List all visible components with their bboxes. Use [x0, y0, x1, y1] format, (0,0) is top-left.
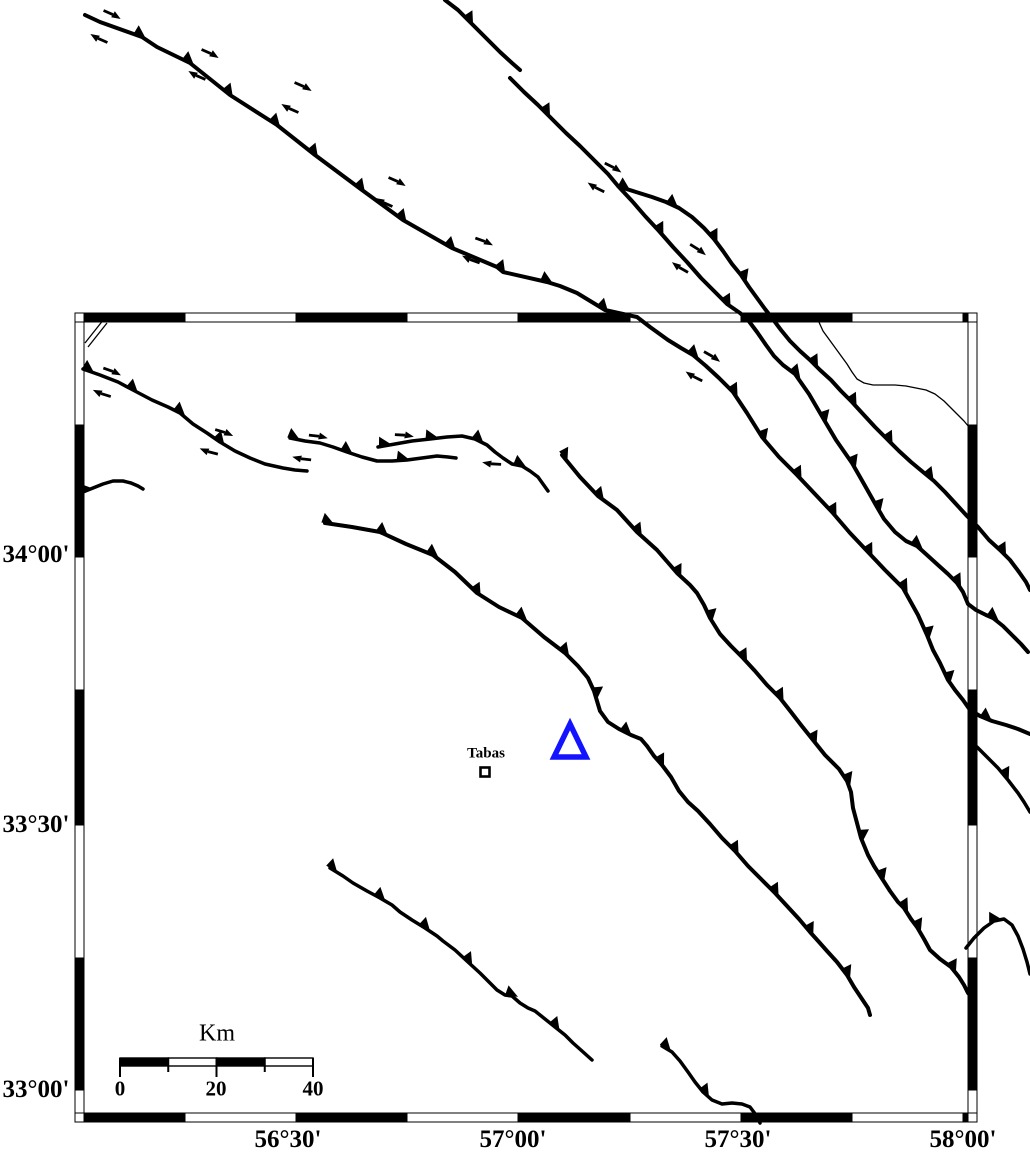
scalebar-segment — [168, 1058, 216, 1066]
fault-ne-thrust-upper-segment — [445, 0, 520, 70]
slip-arrow-icon — [91, 387, 111, 402]
slip-arrow-layer — [89, 6, 723, 470]
slip-arrow-icon — [703, 347, 722, 364]
frame-bottom-segment — [518, 1113, 630, 1122]
frame-left-segment — [75, 322, 84, 425]
fault-sw-thrust — [326, 858, 592, 1060]
frame-bottom-segment — [84, 1113, 185, 1122]
scalebar-label-40: 40 — [303, 1077, 324, 1102]
frame-top-segment — [407, 313, 518, 322]
lon-label-58-00: 58°00' — [930, 1126, 997, 1154]
scalebar-segment — [217, 1058, 265, 1066]
frame-left-segment — [75, 557, 84, 690]
frame-bottom-segment — [630, 1113, 741, 1122]
frame-corner — [968, 1113, 977, 1122]
slip-arrow-icon — [395, 429, 415, 440]
slip-arrow-icon — [280, 101, 300, 117]
frame-right-segment — [968, 1090, 977, 1113]
fault-trace — [325, 523, 870, 1015]
lon-label-57-30: 57°30' — [705, 1126, 772, 1154]
fault-south-small-fault — [660, 1037, 760, 1123]
map-canvas — [0, 0, 1030, 1154]
frame-top-segment — [630, 313, 741, 322]
frame-right-segment — [968, 958, 977, 1090]
frame-bottom-segment — [296, 1113, 407, 1122]
slip-arrow-icon — [294, 78, 314, 94]
fault-trace — [290, 438, 456, 461]
frame-top-segment — [296, 313, 407, 322]
fault-trace — [83, 481, 143, 492]
frame-top-segment — [741, 313, 852, 322]
fault-central-thrust — [321, 513, 870, 1015]
thrust-tooth — [321, 513, 334, 525]
slip-arrow-icon — [308, 430, 328, 442]
scalebar-label-20: 20 — [206, 1077, 227, 1102]
frame-bottom-segment — [852, 1113, 963, 1122]
fault-east-central-thrust — [559, 447, 974, 1000]
thrust-tooth — [505, 985, 518, 996]
frame-corner — [968, 313, 977, 322]
slip-arrow-icon — [89, 31, 109, 47]
frame-corner — [75, 1113, 84, 1122]
scalebar — [120, 1058, 313, 1077]
slip-arrow-icon — [475, 233, 495, 248]
slip-arrow-icon — [201, 45, 221, 61]
frame-right-segment — [968, 557, 977, 690]
fault-trace — [662, 1046, 760, 1123]
frame-left-segment — [75, 1090, 84, 1113]
scalebar-label-0: 0 — [115, 1077, 126, 1102]
fault-ew-fault-1 — [82, 360, 307, 471]
fault-west-short-fault — [78, 481, 143, 493]
frame-top-segment — [852, 313, 963, 322]
lat-label-33-00: 33°00' — [3, 1076, 70, 1104]
station-triangle-marker — [554, 724, 586, 757]
slip-arrow-icon — [291, 453, 311, 465]
fault-trace — [330, 868, 592, 1060]
frame-corner — [75, 313, 84, 322]
scalebar-title: Km — [199, 1021, 235, 1048]
thrust-tooth — [397, 451, 410, 461]
slip-arrow-icon — [198, 445, 218, 459]
frame-bottom-segment — [407, 1113, 518, 1122]
frame-left-segment — [75, 825, 84, 958]
river — [818, 320, 969, 427]
fault-layer — [78, 0, 1030, 1123]
fault-trace — [977, 747, 1030, 812]
thrust-tooth — [426, 429, 439, 439]
frame-right-segment — [968, 322, 977, 425]
frame-top-segment — [518, 313, 630, 322]
lon-label-56-30: 56°30' — [255, 1126, 322, 1154]
slip-arrow-icon — [103, 6, 123, 22]
frame-left-segment — [75, 958, 84, 1090]
fault-ne-thrust-main — [510, 78, 1028, 652]
lon-label-57-00: 57°00' — [480, 1126, 547, 1154]
frame-right-segment — [968, 425, 977, 557]
slip-arrow-icon — [586, 180, 606, 197]
frame-top-segment — [963, 313, 968, 322]
slip-arrow-icon — [481, 459, 501, 470]
fault-trace — [510, 78, 1028, 652]
slip-arrow-icon — [684, 369, 704, 386]
slip-arrow-icon — [689, 240, 708, 258]
city-marker-square — [481, 768, 490, 777]
slip-arrow-icon — [388, 173, 408, 189]
fault-trace — [445, 0, 520, 70]
frame-bottom-segment — [185, 1113, 296, 1122]
fault-se-outside-fault — [977, 747, 1030, 812]
frame-bottom-segment — [963, 1113, 968, 1122]
frame-top-segment — [84, 313, 185, 322]
thin-line-layer — [85, 319, 969, 427]
map-stage: 34°00' 33°30' 33°00' 56°30' 57°00' 57°30… — [0, 0, 1030, 1154]
lat-label-34-00: 34°00' — [3, 541, 70, 569]
city-label-tabas: Tabas — [467, 746, 505, 763]
frame-left-segment — [75, 690, 84, 825]
fault-trace — [83, 369, 307, 471]
scalebar-segment — [265, 1058, 313, 1066]
frame-top-segment — [185, 313, 296, 322]
lat-label-33-30: 33°30' — [3, 811, 70, 839]
scalebar-segment — [120, 1058, 168, 1066]
